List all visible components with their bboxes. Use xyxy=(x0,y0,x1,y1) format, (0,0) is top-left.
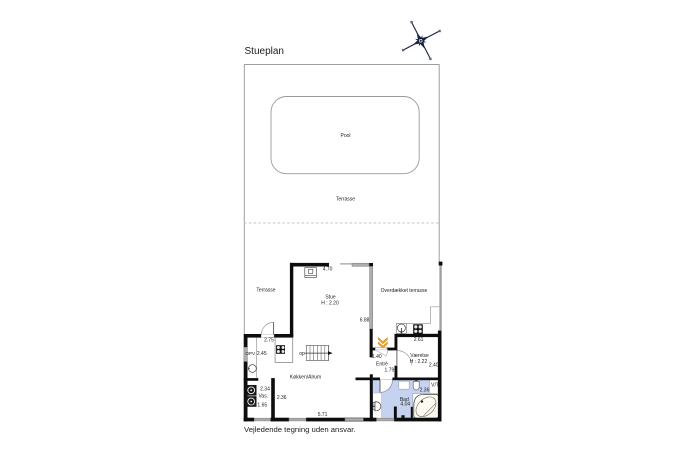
svg-text:Værelse: Værelse xyxy=(410,353,429,359)
svg-text:H : 2.22: H : 2.22 xyxy=(410,359,428,365)
svg-text:Stueplan: Stueplan xyxy=(245,46,284,57)
svg-text:Terrasse: Terrasse xyxy=(336,197,355,203)
svg-text:V/T: V/T xyxy=(431,382,439,388)
svg-text:op: op xyxy=(299,351,305,357)
svg-text:2.40: 2.40 xyxy=(429,363,439,369)
svg-text:6.88: 6.88 xyxy=(360,317,370,323)
svg-text:Stue: Stue xyxy=(325,294,336,300)
svg-text:Vejledende tegning uden ansvar: Vejledende tegning uden ansvar. xyxy=(244,425,356,434)
svg-text:Overdækket terrasse: Overdækket terrasse xyxy=(381,288,428,294)
svg-text:Vas.: Vas. xyxy=(258,393,268,399)
svg-text:1.65: 1.65 xyxy=(257,402,267,408)
svg-text:H : 2.20: H : 2.20 xyxy=(321,300,339,306)
svg-text:4.04: 4.04 xyxy=(400,401,410,407)
svg-text:5.71: 5.71 xyxy=(318,412,328,418)
svg-text:1.40: 1.40 xyxy=(372,354,382,360)
svg-text:2.34: 2.34 xyxy=(260,387,270,393)
svg-text:Terrasse: Terrasse xyxy=(256,288,275,294)
svg-text:Køkken/Alrum: Køkken/Alrum xyxy=(290,374,321,380)
svg-text:2.75: 2.75 xyxy=(264,337,274,343)
svg-text:2.45: 2.45 xyxy=(257,351,267,357)
svg-text:2.36: 2.36 xyxy=(277,395,287,401)
svg-text:Pool: Pool xyxy=(340,133,350,139)
svg-text:4.70: 4.70 xyxy=(323,267,333,273)
svg-text:OPV: OPV xyxy=(245,351,256,356)
svg-text:2.36: 2.36 xyxy=(420,387,430,393)
svg-text:2.61: 2.61 xyxy=(414,337,424,343)
svg-text:1.79: 1.79 xyxy=(385,368,395,374)
